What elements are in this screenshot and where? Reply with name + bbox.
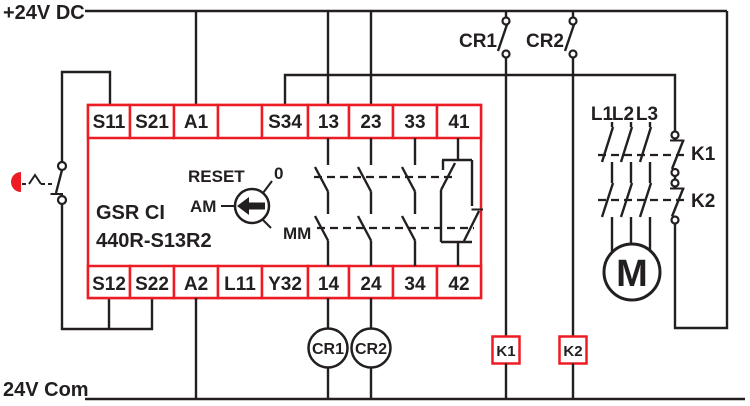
l2-k1-arm [621, 127, 632, 162]
k2-aux-contact: K2 [670, 180, 715, 224]
terminal-label: 13 [318, 112, 339, 133]
k2-aux-top-terminal [672, 180, 679, 187]
cr2-monitor-contact: CR2 [526, 11, 577, 337]
motor-branch: L1 L2 L3 K1 [591, 104, 716, 300]
terminal-label: L11 [224, 274, 256, 295]
positive-rail-label: +24V DC [3, 2, 85, 24]
phase-l3-label: L3 [636, 104, 658, 125]
terminal-label: 23 [360, 112, 381, 133]
cr2-contact-bottom-terminal [570, 51, 577, 58]
cr2-coil-label: CR2 [355, 341, 387, 358]
estop-mushroom-button [11, 172, 21, 192]
k2-aux-label: K2 [691, 191, 715, 212]
terminal-label: 34 [404, 274, 426, 295]
cr1-contact-arm [498, 25, 507, 52]
reset-label: RESET [188, 167, 245, 186]
estop-contact-arm [56, 170, 62, 193]
terminal-label: S12 [92, 274, 126, 295]
terminal-label: A2 [184, 274, 208, 295]
safety-relay-module: S11 S21 A1 S34 13 23 33 41 S12 S22 A2 L1… [88, 105, 483, 298]
cr2-relay-coil: CR2 [352, 298, 391, 399]
k2-aux-arm [672, 189, 683, 217]
terminal-label: 33 [404, 112, 425, 133]
motor-label: M [616, 253, 648, 295]
k1-aux-bottom-terminal [672, 169, 679, 176]
terminal-label: S11 [93, 112, 126, 133]
k1-contactor-coil: K1 [493, 337, 520, 400]
safety-relay-wiring-diagram: CR1 CR2 S11 S21 A1 S34 13 23 [0, 0, 750, 406]
terminal-label: S34 [268, 112, 302, 133]
phase-l2-label: L2 [612, 104, 634, 125]
common-rail-label: 24V Com [3, 379, 89, 401]
terminal-label: 42 [448, 274, 469, 295]
l3-k1-arm [640, 127, 651, 162]
k1-aux-top-terminal [672, 132, 679, 139]
estop-contact-bottom-terminal [58, 196, 66, 204]
feedback-loop-wire [675, 11, 727, 328]
relay-model-line1: GSR CI [96, 202, 165, 224]
cr1-coil-label: CR1 [312, 341, 344, 358]
relay-bottom-terminal-row: S12 S22 A2 L11 Y32 14 24 34 42 [88, 266, 481, 298]
k2-contactor-coil: K2 [560, 337, 587, 400]
cr1-relay-coil: CR1 [309, 298, 348, 399]
terminal-label: A1 [184, 112, 209, 133]
selector-position-0: 0 [274, 164, 283, 183]
k1-aux-contact: K1 [670, 132, 716, 177]
terminal-label: S21 [135, 112, 169, 133]
terminal-label: 14 [318, 274, 340, 295]
terminal-label: S22 [135, 274, 169, 295]
terminal-cell-blank [218, 105, 262, 138]
cr2-contact-arm [565, 25, 574, 52]
estop-contact-top-terminal [58, 162, 66, 170]
supply-wires [196, 11, 371, 105]
estop-linkage-caret [29, 175, 41, 184]
relay-model-line2: 440R-S13R2 [96, 230, 212, 252]
cr2-contact-label: CR2 [526, 31, 564, 52]
selector-position-am: AM [190, 197, 216, 216]
l1-k1-arm [602, 127, 613, 162]
cr2-contact-top-terminal [570, 18, 577, 25]
k2-aux-bottom-terminal [672, 217, 679, 224]
terminal-label: 41 [448, 112, 470, 133]
terminal-label: Y32 [268, 274, 302, 295]
wiring-diagram-page: CR1 CR2 S11 S21 A1 S34 13 23 [0, 0, 750, 406]
cr1-contact-label: CR1 [459, 31, 497, 52]
k1-aux-label: K1 [691, 144, 716, 165]
phase-l1-label: L1 [591, 104, 614, 125]
selector-position-mm: MM [283, 224, 311, 243]
k1-coil-label: K1 [496, 343, 515, 360]
k2-coil-label: K2 [563, 343, 582, 360]
cr1-contact-top-terminal [503, 18, 510, 25]
terminal-label: 24 [360, 274, 382, 295]
cr1-contact-bottom-terminal [503, 51, 510, 58]
relay-top-terminal-row: S11 S21 A1 S34 13 23 33 41 [88, 105, 481, 138]
